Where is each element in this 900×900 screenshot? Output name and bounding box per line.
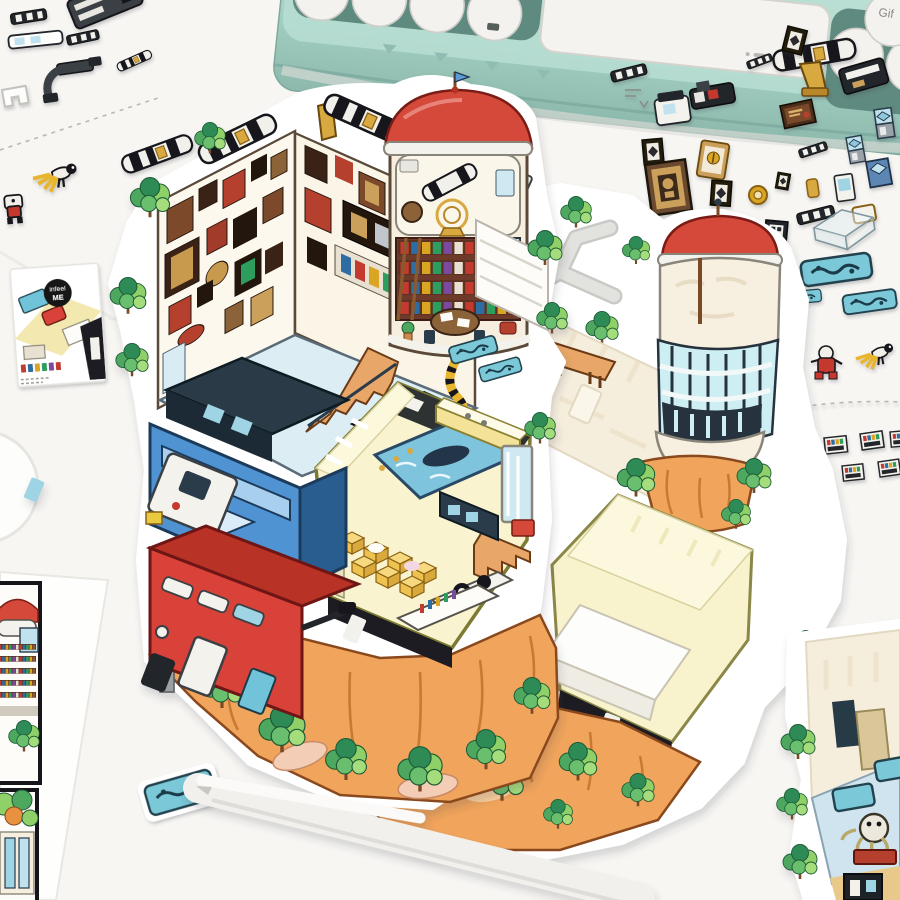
sheet-panel-tower bbox=[0, 583, 40, 783]
photo-stage: Gif bbox=[0, 0, 900, 900]
svg-text:ME: ME bbox=[52, 293, 64, 303]
keycap-label: Gif bbox=[878, 5, 896, 21]
library-tower bbox=[384, 72, 532, 356]
sheet-panel-garden bbox=[0, 790, 38, 900]
observatory bbox=[396, 155, 520, 236]
preview-card: infeel ME bbox=[10, 263, 106, 387]
scene: Gif bbox=[0, 0, 900, 900]
